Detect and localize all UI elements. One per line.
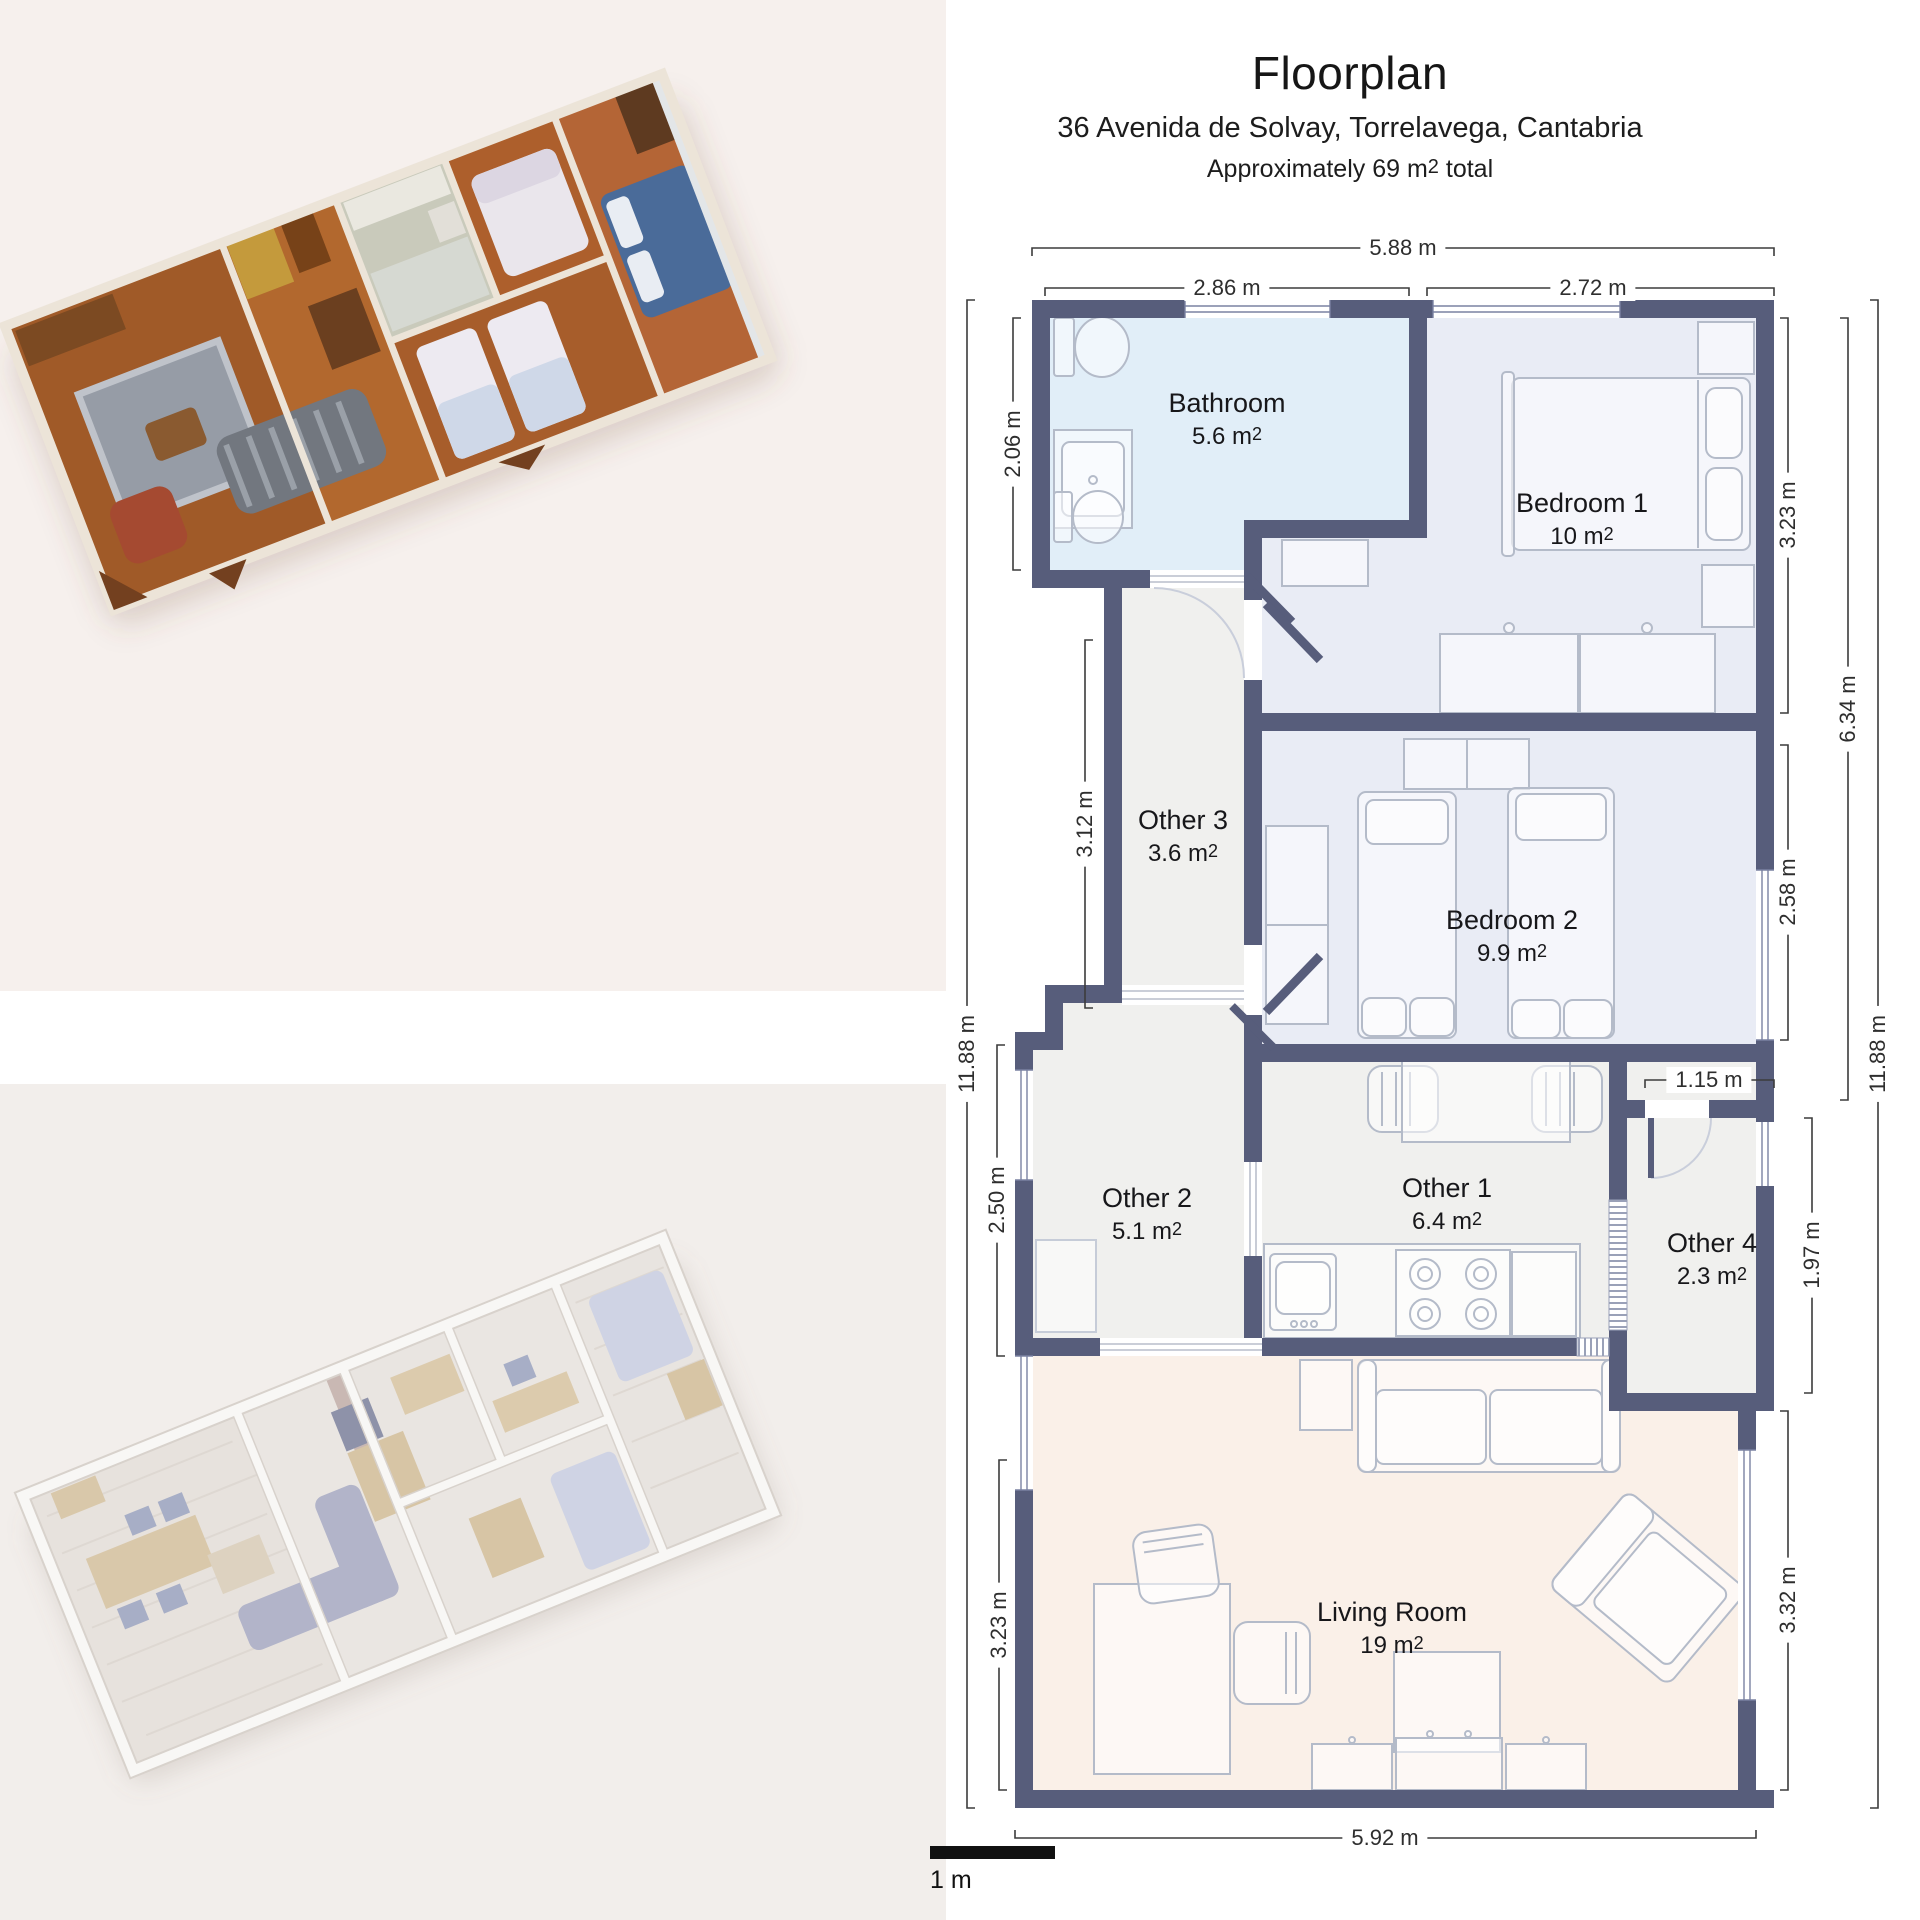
dim-right-bedroom1: 3.23 m: [1775, 472, 1801, 557]
cabinet: [1698, 322, 1754, 374]
scale-bar-label: 1 m: [930, 1866, 972, 1895]
dim-top-left: 2.86 m: [1184, 275, 1269, 301]
desk-chair-right: [1234, 1622, 1310, 1704]
room-label-bedroom2: Bedroom 2 9.9 m2: [1446, 905, 1578, 968]
room-label-bedroom1: Bedroom 1 10 m2: [1516, 488, 1648, 551]
side-table: [1300, 1360, 1352, 1430]
threshold: [1122, 985, 1244, 1005]
dim-top-right: 2.72 m: [1550, 275, 1635, 301]
other3-floor: [1122, 588, 1244, 985]
toilet: [1054, 317, 1129, 377]
window: [1015, 1070, 1033, 1180]
threshold: [1244, 1162, 1262, 1256]
dresser: [1404, 739, 1529, 789]
single-bed-a: [1358, 792, 1456, 1038]
room-label-bathroom: Bathroom 5.6 m2: [1168, 388, 1285, 451]
dim-right-mid: 6.34 m: [1835, 666, 1861, 751]
dim-right-other4: 1.97 m: [1799, 1212, 1825, 1297]
hall-cabinet: [1036, 1240, 1096, 1332]
kitchen-table: [1402, 1056, 1570, 1142]
dim-top-total: 5.88 m: [1360, 235, 1445, 261]
room-label-other2: Other 2 5.1 m2: [1102, 1183, 1192, 1246]
interior-window-hatched: [1609, 1200, 1627, 1330]
dim-left-total: 11.88 m: [954, 1006, 980, 1102]
dim-bottom-total: 5.92 m: [1342, 1825, 1427, 1851]
room-label-other3: Other 3 3.6 m2: [1138, 805, 1228, 868]
dim-left-other3: 3.12 m: [1072, 781, 1098, 866]
window: [1015, 1356, 1033, 1490]
room-label-other1: Other 1 6.4 m2: [1402, 1173, 1492, 1236]
dim-left-other2: 2.50 m: [984, 1157, 1010, 1242]
threshold: [1100, 1338, 1262, 1356]
dim-right-bedroom2: 2.58 m: [1775, 849, 1801, 934]
sofa: [1358, 1360, 1620, 1472]
dim-right-living: 3.32 m: [1775, 1557, 1801, 1642]
wardrobe: [1266, 826, 1328, 1024]
window: [1433, 300, 1620, 318]
dim-left-living: 3.23 m: [986, 1582, 1012, 1667]
threshold: [1150, 570, 1244, 588]
window: [1756, 1122, 1774, 1186]
nightstand: [1702, 565, 1754, 627]
interior-window-hatched: [1577, 1338, 1609, 1356]
tv-cabinets: [1312, 1731, 1586, 1790]
window: [1738, 1450, 1756, 1700]
dim-left-bathroom: 2.06 m: [1000, 401, 1026, 486]
dim-right-total: 11.88 m: [1865, 1006, 1891, 1102]
desk: [1094, 1584, 1230, 1774]
desk-chair-top: [1131, 1523, 1220, 1605]
dim-nook-width: 1.15 m: [1666, 1067, 1751, 1093]
tv-cabinet: [1282, 540, 1368, 586]
bidet: [1054, 491, 1123, 543]
room-label-living: Living Room 19 m2: [1317, 1597, 1467, 1660]
window: [1756, 870, 1774, 1040]
scale-bar: [930, 1846, 1055, 1859]
room-label-other4: Other 4 2.3 m2: [1667, 1228, 1757, 1291]
window: [1185, 300, 1330, 318]
kitchen-counter: [1264, 1244, 1580, 1338]
dressers: [1440, 623, 1715, 713]
